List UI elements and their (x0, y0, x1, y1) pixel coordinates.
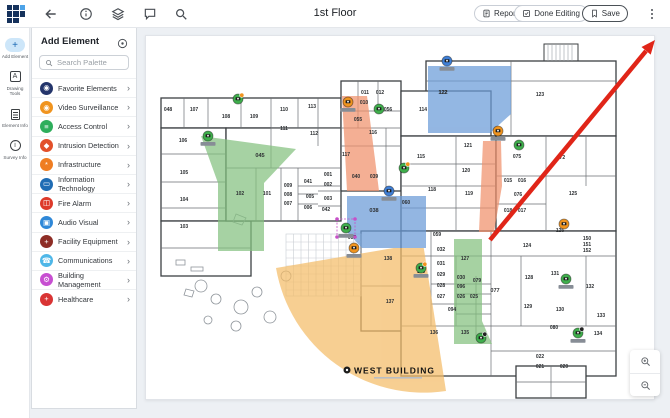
room-label-060: 060 (402, 200, 411, 206)
room-label-028: 028 (437, 283, 446, 289)
room-label-018: 018 (504, 208, 513, 214)
room-label-119: 119 (465, 191, 473, 197)
room-label-021: 021 (536, 364, 545, 370)
room-label-117: 117 (342, 152, 350, 158)
room-label-039: 039 (370, 174, 379, 180)
chevron-right-icon: › (127, 83, 130, 93)
drawing-tools-icon: A (5, 70, 25, 84)
room-label-137: 137 (386, 299, 395, 305)
camera-lens (345, 227, 347, 229)
room-label-072: 072 (557, 155, 566, 161)
device-camera-green-10[interactable] (514, 140, 524, 150)
card-reader-icon: ≡ (40, 120, 53, 133)
phone-icon: ☎ (40, 254, 53, 267)
room-label-102: 102 (236, 191, 245, 197)
device-label-chip (341, 108, 356, 112)
device-camera-green-3[interactable] (374, 104, 384, 114)
conduit-icon: * (40, 158, 53, 171)
gear-icon: ⚙ (40, 273, 53, 286)
camera-lens (446, 60, 448, 62)
camera-lens (563, 223, 565, 225)
room-label-048: 048 (164, 107, 173, 113)
selection-handle[interactable] (353, 217, 357, 221)
room-label-031: 031 (437, 261, 446, 267)
room-label-056: 056 (384, 107, 393, 113)
palette-category-access-control[interactable]: ≡Access Control› (32, 116, 136, 135)
room-label-045: 045 (255, 153, 264, 159)
room-label-029: 029 (437, 272, 446, 278)
room-label-076: 076 (514, 192, 523, 198)
search-icon (45, 59, 53, 67)
floorplan-canvas[interactable]: 0481071081091101131111121061051041031021… (145, 35, 655, 400)
bookmark-icon (590, 9, 599, 18)
room-label-138: 138 (384, 256, 393, 262)
camera-lens (565, 278, 567, 280)
palette-category-communications[interactable]: ☎Communications› (32, 251, 136, 270)
room-label-123: 123 (536, 92, 545, 98)
chevron-right-icon: › (127, 198, 130, 208)
comment-icon[interactable] (143, 7, 157, 21)
room-label-079: 079 (473, 278, 482, 284)
status-dot (406, 162, 410, 166)
rail-element-info[interactable]: Element Info (0, 107, 30, 129)
room-label-006: 006 (304, 205, 313, 211)
room-label-009: 009 (284, 183, 293, 189)
room-label-136: 136 (430, 330, 439, 336)
palette-category-facility-equipment[interactable]: +Facility Equipment› (32, 232, 136, 251)
device-label-chip (571, 339, 586, 343)
room-label-012: 012 (376, 90, 385, 96)
palette-search-input[interactable] (57, 58, 123, 67)
fire-panel-icon: ◫ (40, 197, 53, 210)
room-label-125: 125 (569, 191, 578, 197)
device-label-chip (347, 254, 362, 258)
add-element-panel: Add Element ◉Favorite Elements›◉Video Su… (31, 28, 137, 409)
room-label-152: 152 (583, 248, 592, 254)
palette-category-healthcare[interactable]: +Healthcare› (32, 289, 136, 308)
status-dot (423, 262, 427, 266)
selection-handle[interactable] (335, 217, 339, 221)
room-label-107: 107 (190, 107, 199, 113)
selection-handle[interactable] (335, 235, 339, 239)
document-icon (482, 9, 491, 18)
room-label-042: 042 (322, 207, 331, 213)
floorplan-workspace: 0481071081091101131111121061051041031021… (137, 28, 670, 418)
room-label-120: 120 (462, 168, 471, 174)
rail-add-element[interactable]: + Add Element (0, 38, 30, 60)
palette-search[interactable] (39, 55, 129, 70)
status-dot (240, 93, 244, 97)
camera-lens (403, 167, 405, 169)
chevron-right-icon: › (127, 179, 130, 189)
room-label-122: 122 (438, 90, 447, 96)
room-label-104: 104 (180, 197, 189, 203)
room-label-017: 017 (518, 208, 527, 214)
room-label-124: 124 (523, 243, 532, 249)
plus-icon: + (40, 235, 53, 248)
camera-lens (577, 332, 579, 334)
plus-icon: + (5, 38, 25, 52)
page-title: 1st Floor (314, 7, 357, 19)
shield-cross-icon: + (40, 293, 53, 306)
device-label-chip (440, 67, 455, 71)
chevron-right-icon: › (127, 141, 130, 151)
zone-blue-038 (347, 196, 426, 248)
rail-survey-info[interactable]: i Survey Info (0, 139, 30, 161)
collapse-panel-icon[interactable] (117, 36, 128, 47)
element-info-icon (5, 107, 25, 121)
chevron-right-icon: › (127, 256, 130, 266)
category-label: Communications (58, 256, 122, 265)
category-label: Building Management (58, 271, 122, 289)
room-label-001: 001 (324, 172, 333, 178)
zoom-controls (630, 350, 660, 396)
room-label-005: 005 (306, 194, 315, 200)
monitor-icon: ▭ (40, 178, 53, 191)
room-label-111: 111 (280, 126, 288, 132)
camera-icon: ◉ (40, 82, 53, 95)
chevron-right-icon: › (127, 121, 130, 131)
selection-handle[interactable] (353, 235, 357, 239)
zoom-out-button[interactable] (630, 373, 660, 396)
room-label-105: 105 (180, 170, 189, 176)
room-label-109: 109 (250, 114, 259, 120)
room-label-116: 116 (369, 130, 377, 136)
palette-category-favorite-elements[interactable]: ◉Favorite Elements› (32, 78, 136, 97)
room-label-112: 112 (310, 131, 318, 137)
device-label-chip (382, 197, 397, 201)
building-name: WEST BUILDING (354, 366, 435, 376)
room-label-080: 080 (550, 325, 559, 331)
category-label: Intrusion Detection (58, 141, 122, 150)
done-editing-button[interactable]: Done Editing (514, 5, 588, 22)
layers-icon[interactable] (111, 7, 125, 21)
top-toolbar: 1st Floor Reports Done Editing Save (0, 0, 670, 28)
camera-lens (420, 267, 422, 269)
room-label-115: 115 (417, 154, 425, 160)
room-label-131: 131 (551, 271, 560, 277)
room-label-077: 077 (490, 288, 499, 294)
room-label-135: 135 (461, 330, 470, 336)
category-label: Information Technology (58, 175, 122, 193)
camera-lens (480, 337, 482, 339)
palette-category-list: ◉Favorite Elements›◉Video Surveillance›≡… (32, 78, 136, 308)
room-label-059: 059 (433, 232, 442, 238)
category-label: Favorite Elements (58, 84, 122, 93)
room-label-121: 121 (464, 143, 473, 149)
zoom-in-button[interactable] (630, 350, 660, 373)
room-label-027: 027 (437, 294, 446, 300)
room-label-008: 008 (284, 192, 293, 198)
stairs (544, 44, 578, 61)
room-label-127: 127 (461, 256, 470, 262)
palette-category-intrusion-detection[interactable]: ◆Intrusion Detection› (32, 136, 136, 155)
more-options-menu[interactable] (646, 7, 658, 21)
status-dot (483, 332, 487, 336)
camera-lens (347, 101, 349, 103)
category-label: Healthcare (58, 295, 122, 304)
chevron-right-icon: › (127, 275, 130, 285)
palette-category-audio-visual[interactable]: ▣Audio Visual› (32, 212, 136, 231)
camera-lens (497, 130, 499, 132)
camera-lens (518, 144, 520, 146)
room-label-040: 040 (352, 174, 361, 180)
room-label-032: 032 (437, 247, 446, 253)
room-label-026: 026 (457, 294, 466, 300)
category-label: Audio Visual (58, 218, 122, 227)
display-icon: ▣ (40, 216, 53, 229)
device-camera-orange-15[interactable] (559, 219, 569, 229)
room-label-114: 114 (419, 107, 427, 113)
camera-lens (378, 108, 380, 110)
device-label-chip (201, 142, 216, 146)
camera-lens (388, 190, 390, 192)
category-label: Infrastructure (58, 160, 122, 169)
room-label-106: 106 (179, 138, 188, 144)
camera-lens (237, 98, 239, 100)
room-label-011: 011 (361, 90, 369, 96)
room-label-113: 113 (308, 104, 316, 110)
chevron-right-icon: › (127, 294, 130, 304)
room-label-128: 128 (525, 275, 534, 281)
category-label: Facility Equipment (58, 237, 122, 246)
room-label-022: 022 (536, 354, 545, 360)
room-label-132: 132 (586, 284, 595, 290)
room-label-129: 129 (524, 304, 533, 310)
room-label-003: 003 (324, 196, 333, 202)
zone-blue-122 (428, 66, 511, 133)
chevron-right-icon: › (127, 237, 130, 247)
tool-rail: + Add Element A Drawing Tools Element In… (0, 28, 30, 418)
camera-lens (207, 135, 209, 137)
room-label-101: 101 (263, 191, 272, 197)
room-label-134: 134 (594, 331, 603, 337)
room-label-133: 133 (597, 313, 606, 319)
device-label-chip (414, 274, 429, 278)
check-square-icon (522, 9, 531, 18)
room-label-007: 007 (284, 201, 293, 207)
camera-icon: ◉ (40, 101, 53, 114)
room-label-103: 103 (180, 224, 189, 230)
room-label-055: 055 (354, 117, 363, 123)
room-label-025: 025 (470, 294, 479, 300)
room-label-016: 016 (518, 178, 527, 184)
room-label-002: 002 (324, 182, 333, 188)
info-icon[interactable] (79, 7, 93, 21)
device-camera-orange-7[interactable] (347, 243, 362, 258)
survey-info-icon: i (5, 139, 25, 153)
palette-category-video-surveillance[interactable]: ◉Video Surveillance› (32, 97, 136, 116)
room-label-108: 108 (222, 114, 231, 120)
room-label-075: 075 (513, 154, 522, 160)
search-icon[interactable] (174, 7, 188, 21)
chevron-right-icon: › (127, 217, 130, 227)
palette-category-fire-alarm[interactable]: ◫Fire Alarm› (32, 193, 136, 212)
palette-category-information-technology[interactable]: ▭Information Technology› (32, 174, 136, 193)
save-button[interactable]: Save (582, 5, 628, 22)
category-label: Access Control (58, 122, 122, 131)
chevron-right-icon: › (127, 102, 130, 112)
palette-category-building-management[interactable]: ⚙Building Management› (32, 270, 136, 289)
device-label-chip (491, 137, 506, 141)
motion-sensor-icon: ◆ (40, 139, 53, 152)
app-logo[interactable] (5, 3, 27, 25)
device-label-chip (339, 234, 354, 238)
room-label-038: 038 (369, 208, 378, 214)
device-label-chip (559, 285, 574, 289)
room-label-096: 096 (457, 284, 466, 290)
panel-title: Add Element (41, 36, 99, 47)
room-label-118: 118 (428, 187, 436, 193)
back-arrow-icon[interactable] (44, 7, 58, 21)
rail-drawing-tools[interactable]: A Drawing Tools (0, 70, 30, 97)
status-dot (580, 327, 584, 331)
room-label-015: 015 (504, 178, 513, 184)
category-label: Video Surveillance (58, 103, 122, 112)
room-label-020: 020 (560, 364, 569, 370)
room-label-130: 130 (556, 307, 565, 313)
category-label: Fire Alarm (58, 199, 122, 208)
chevron-right-icon: › (127, 160, 130, 170)
room-label-030: 030 (457, 275, 466, 281)
room-label-010: 010 (360, 100, 369, 106)
room-label-110: 110 (280, 107, 288, 113)
room-label-041: 041 (304, 179, 313, 185)
camera-lens (353, 247, 355, 249)
room-label-094: 094 (448, 307, 457, 313)
palette-category-infrastructure[interactable]: *Infrastructure› (32, 155, 136, 174)
